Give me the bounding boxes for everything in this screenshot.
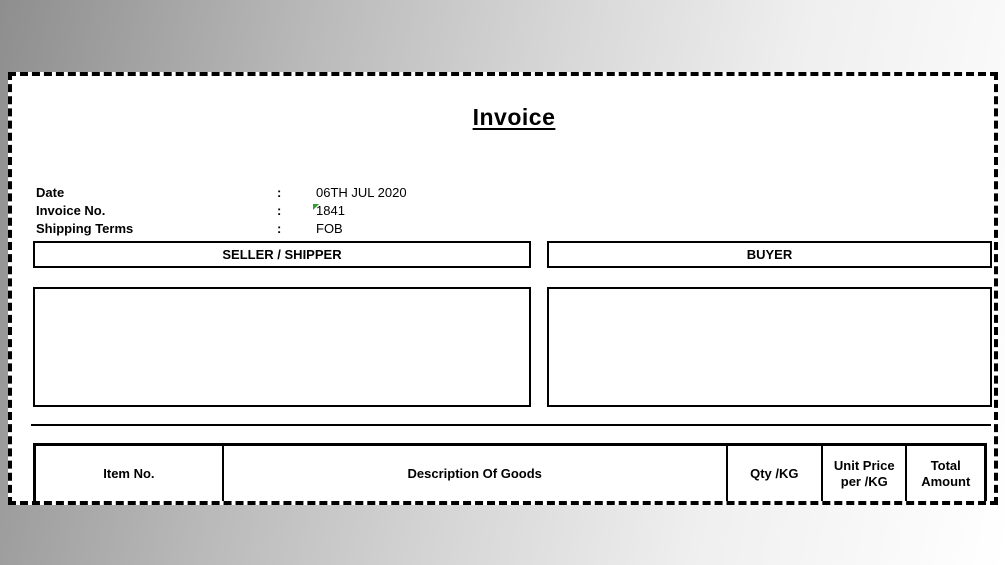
shipping-terms-label: Shipping Terms (36, 220, 133, 238)
divider-rule (31, 424, 991, 426)
unit-price-label-line1: Unit Price (834, 458, 895, 474)
buyer-header: BUYER (547, 241, 992, 268)
invoice-title: Invoice (473, 104, 556, 130)
date-label: Date (36, 184, 64, 202)
item-no-label: Item No. (103, 466, 154, 482)
date-colon: : (277, 184, 281, 202)
column-header-total-amount: Total Amount (907, 446, 984, 505)
invoice-no-label: Invoice No. (36, 202, 105, 220)
items-table-header-row: Item No. Description Of Goods Qty /KG Un… (33, 443, 987, 505)
invoice-document: Invoice Date : 06TH JUL 2020 Invoice No.… (8, 72, 998, 505)
buyer-header-label: BUYER (747, 247, 793, 262)
seller-shipper-header: SELLER / SHIPPER (33, 241, 531, 268)
page-background: Invoice Date : 06TH JUL 2020 Invoice No.… (0, 0, 1005, 565)
column-header-unit-price: Unit Price per /KG (823, 446, 907, 505)
column-header-description: Description Of Goods (224, 446, 728, 505)
seller-shipper-address-box[interactable] (33, 287, 531, 407)
invoice-no-colon: : (277, 202, 281, 220)
shipping-terms-colon: : (277, 220, 281, 238)
unit-price-label-line2: per /KG (841, 474, 888, 490)
date-value[interactable]: 06TH JUL 2020 (316, 184, 407, 202)
seller-shipper-header-label: SELLER / SHIPPER (222, 247, 341, 262)
invoice-no-value[interactable]: 1841 (316, 202, 345, 220)
buyer-address-box[interactable] (547, 287, 992, 407)
qty-label: Qty /KG (750, 466, 798, 482)
total-amount-label-line1: Total (931, 458, 961, 474)
description-label: Description Of Goods (408, 466, 542, 482)
column-header-item-no: Item No. (36, 446, 224, 505)
total-amount-label-line2: Amount (921, 474, 970, 490)
title-row: Invoice (12, 104, 994, 131)
invoice-no-text: 1841 (316, 203, 345, 218)
number-stored-as-text-flag-icon (313, 204, 319, 210)
column-header-qty: Qty /KG (728, 446, 823, 505)
shipping-terms-value[interactable]: FOB (316, 220, 343, 238)
